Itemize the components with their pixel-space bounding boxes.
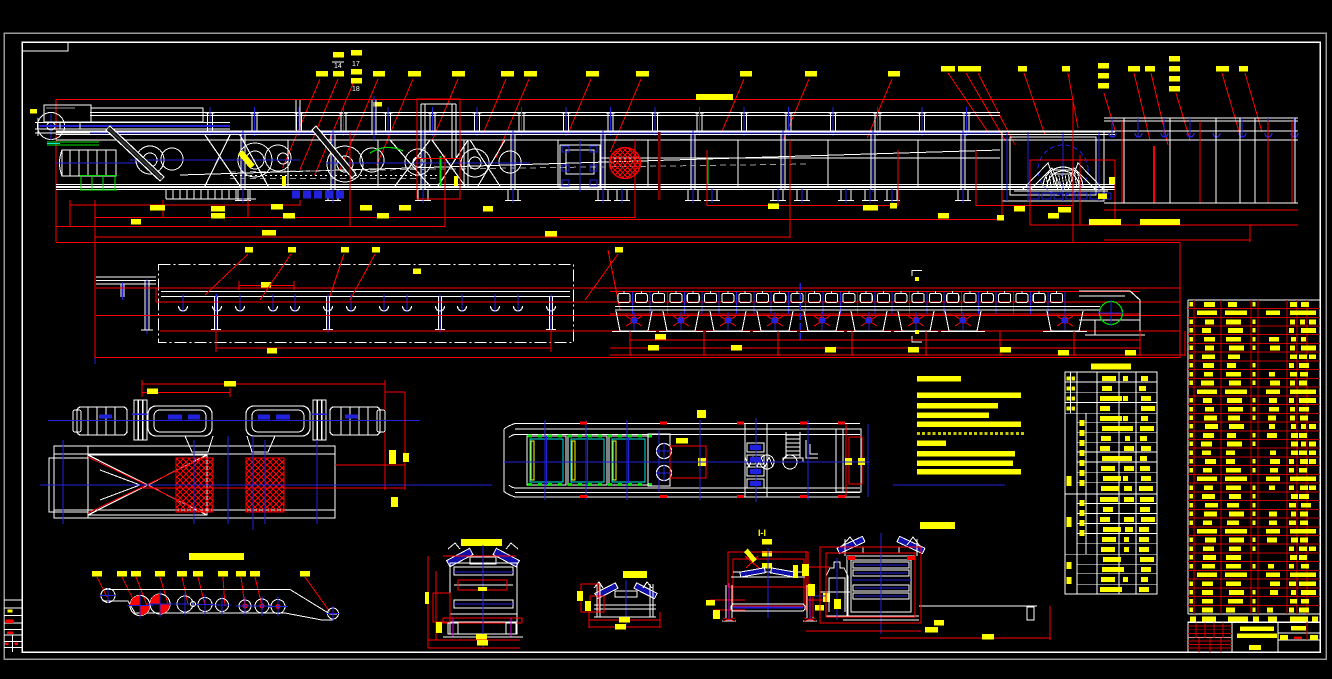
- svg-text:I-I: I-I: [758, 528, 766, 538]
- svg-text:17: 17: [352, 61, 360, 68]
- svg-text:14: 14: [334, 63, 342, 70]
- svg-text:18: 18: [352, 86, 360, 93]
